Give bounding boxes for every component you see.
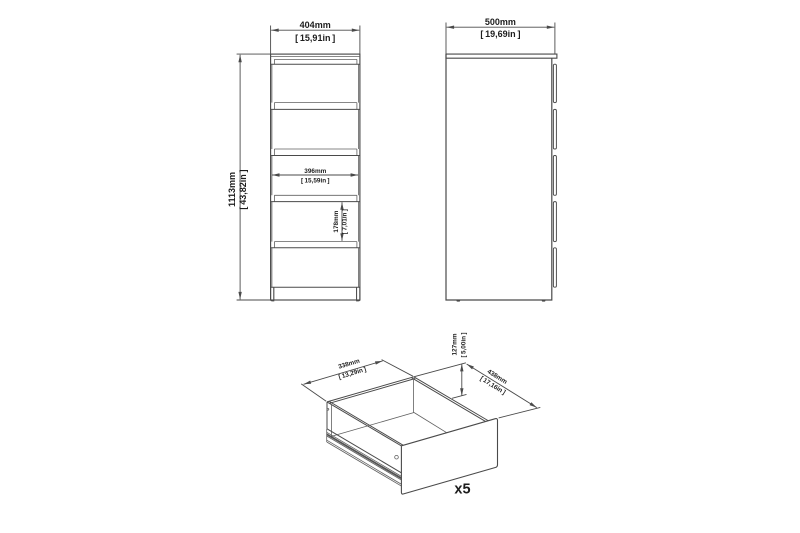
svg-text:[ 15,91in ]: [ 15,91in ] — [295, 33, 335, 43]
svg-text:1113mm: 1113mm — [227, 172, 237, 207]
svg-text:404mm: 404mm — [300, 20, 331, 30]
svg-text:[ 15,59in ]: [ 15,59in ] — [301, 177, 330, 184]
svg-text:x5: x5 — [454, 481, 470, 497]
svg-text:[ 7,01in ]: [ 7,01in ] — [342, 209, 349, 234]
svg-text:[ 5,00in ]: [ 5,00in ] — [460, 333, 467, 358]
svg-text:127mm: 127mm — [452, 333, 459, 355]
svg-text:[ 19,69in ]: [ 19,69in ] — [480, 29, 520, 39]
svg-text:[ 43,82in ]: [ 43,82in ] — [238, 169, 248, 209]
svg-text:500mm: 500mm — [485, 17, 516, 27]
svg-text:178mm: 178mm — [333, 210, 340, 232]
svg-text:396mm: 396mm — [304, 168, 326, 175]
